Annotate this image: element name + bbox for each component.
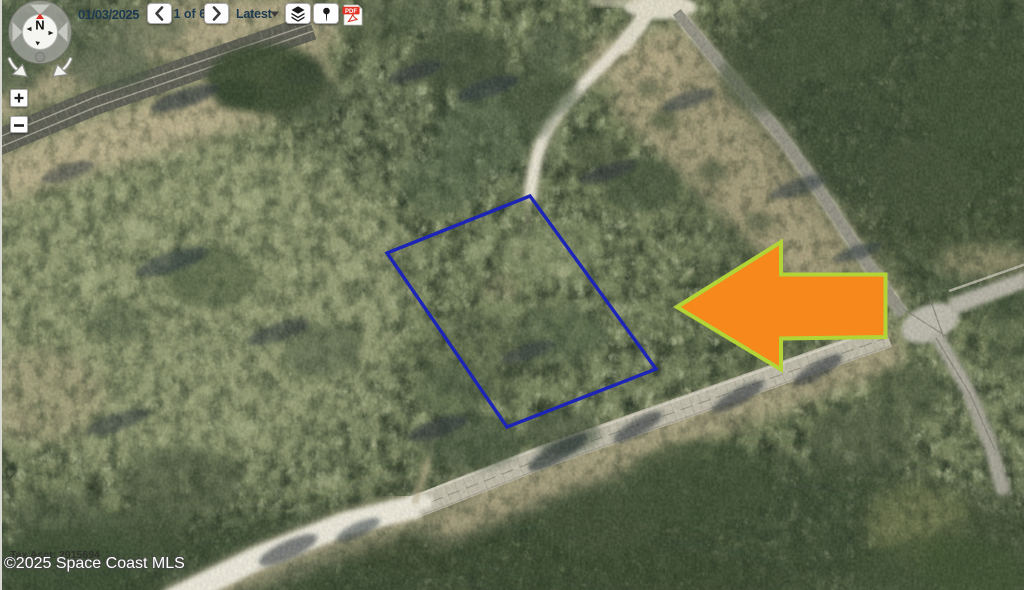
svg-text:N: N xyxy=(35,18,44,33)
svg-text:PDF: PDF xyxy=(345,9,357,15)
